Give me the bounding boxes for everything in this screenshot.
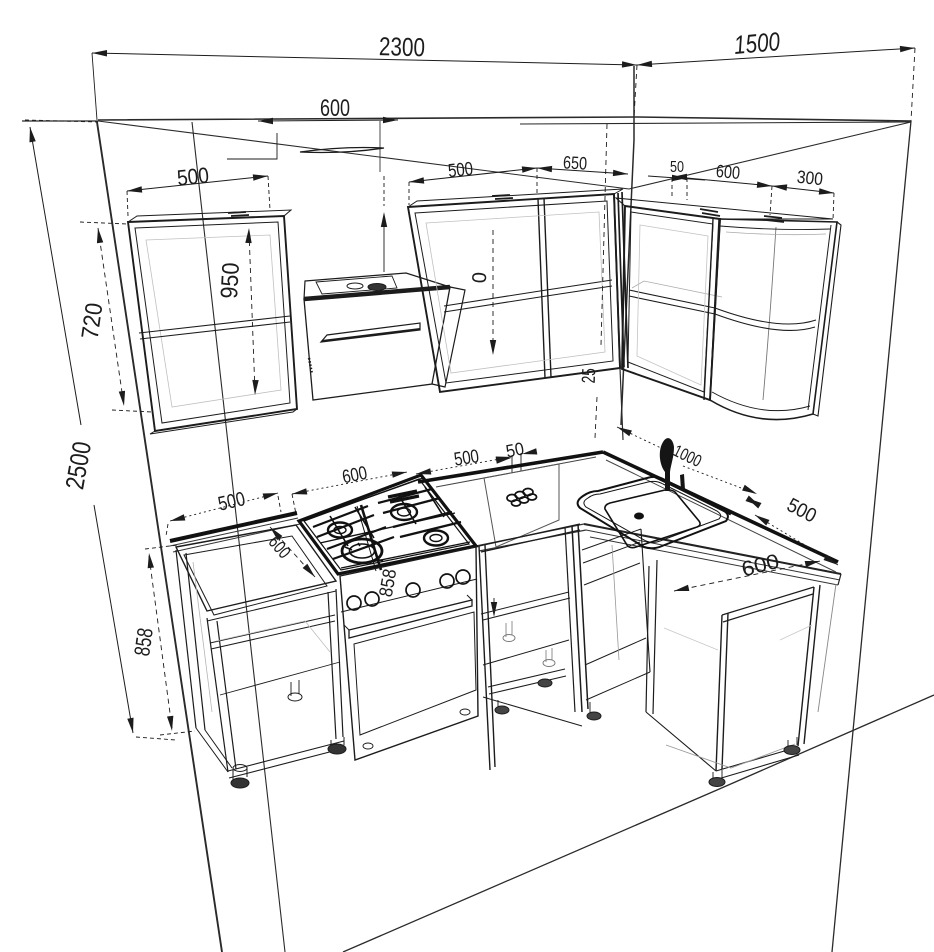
svg-text:500: 500	[453, 446, 481, 471]
svg-text:650: 650	[563, 152, 588, 173]
svg-text:300: 300	[796, 167, 824, 190]
svg-text:600: 600	[320, 95, 350, 122]
svg-text:720: 720	[77, 301, 109, 340]
svg-text:500: 500	[447, 159, 474, 182]
svg-text:0: 0	[469, 272, 492, 284]
svg-text:50: 50	[504, 438, 525, 461]
svg-text:950: 950	[216, 262, 245, 299]
svg-text:2300: 2300	[379, 31, 426, 62]
svg-text:25: 25	[579, 368, 601, 384]
svg-text:858: 858	[129, 626, 158, 657]
svg-text:50: 50	[670, 159, 684, 176]
svg-text:1500: 1500	[733, 26, 782, 60]
svg-text:600: 600	[715, 161, 741, 183]
svg-text:500: 500	[176, 162, 210, 190]
